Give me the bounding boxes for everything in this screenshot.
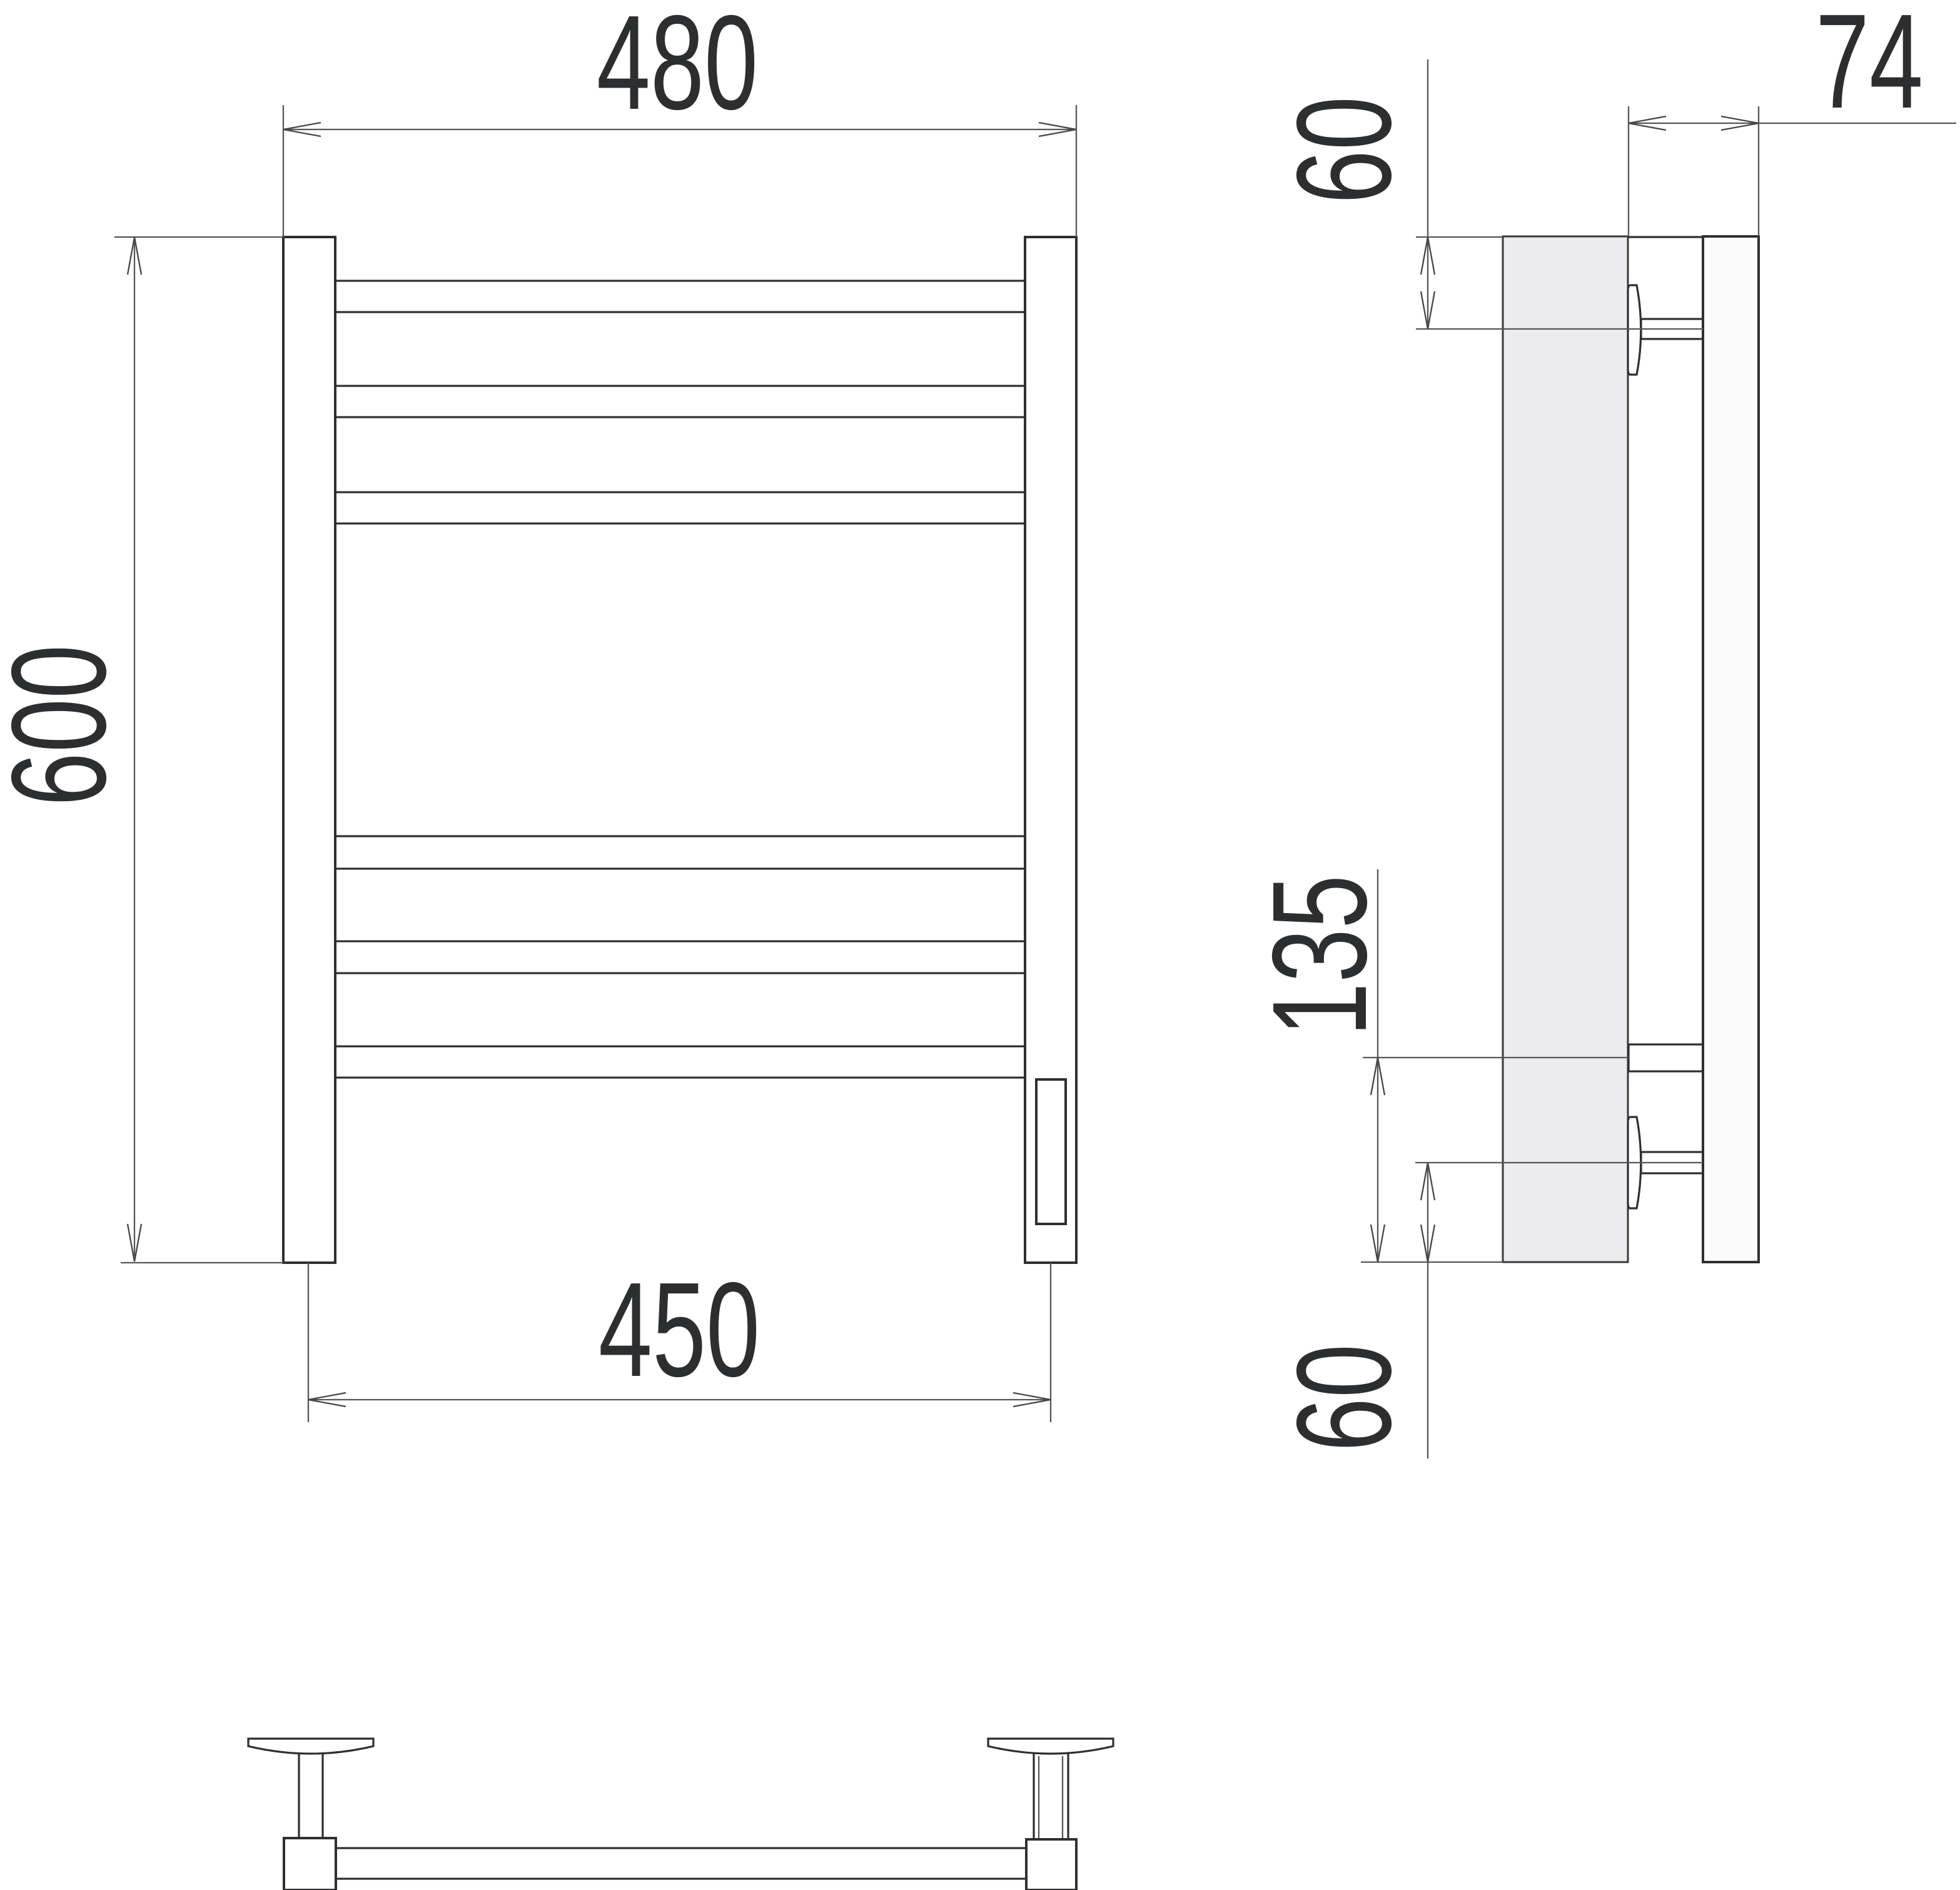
rail-1: [335, 281, 1025, 312]
rail-tubes: [335, 281, 1025, 1078]
left-post: [283, 237, 335, 1263]
rail-5: [335, 941, 1025, 973]
right-bracket-stem: [1034, 1751, 1068, 1840]
rail-6: [335, 1046, 1025, 1078]
side-view: 74 60 135 60: [1244, 0, 1956, 1458]
dim-label-450: 450: [599, 1254, 760, 1405]
dim-side-depth: 74: [1629, 0, 1956, 236]
wall-section: [1503, 236, 1628, 1262]
top-bracket: [1628, 285, 1703, 375]
left-post-top-view: [284, 1838, 336, 1890]
dim-front-span: 450: [308, 1254, 1051, 1422]
lower-bracket: [1629, 1044, 1703, 1071]
dim-front-width: 480: [283, 0, 1076, 237]
left-bracket-stem: [299, 1751, 323, 1839]
left-bracket-flange: [248, 1739, 373, 1754]
bottom-view: [248, 1739, 1113, 1890]
right-bracket-flange: [988, 1739, 1113, 1754]
dim-label-135: 135: [1244, 875, 1395, 1036]
dim-label-60-bottom: 60: [1268, 1344, 1419, 1452]
rail-tube-top-view: [336, 1848, 1026, 1879]
cad-drawing: 480 600 450: [0, 0, 1960, 1890]
dim-front-height: 600: [0, 237, 283, 1263]
dim-label-600: 600: [0, 645, 134, 806]
dim-label-60-top: 60: [1268, 96, 1419, 204]
front-view: 480 600 450: [0, 0, 1076, 1422]
drawing-sheet: 480 600 450: [0, 0, 1960, 1890]
post-profile: [1703, 236, 1759, 1262]
top-bracket-flange: [1628, 285, 1641, 375]
dim-label-480: 480: [597, 0, 758, 138]
right-post-top-view: [1026, 1839, 1076, 1890]
dim-label-74: 74: [1816, 0, 1923, 136]
rail-2: [335, 386, 1025, 417]
rail-4: [335, 836, 1025, 869]
rail-3: [335, 492, 1025, 523]
heating-element-box: [1036, 1079, 1066, 1224]
